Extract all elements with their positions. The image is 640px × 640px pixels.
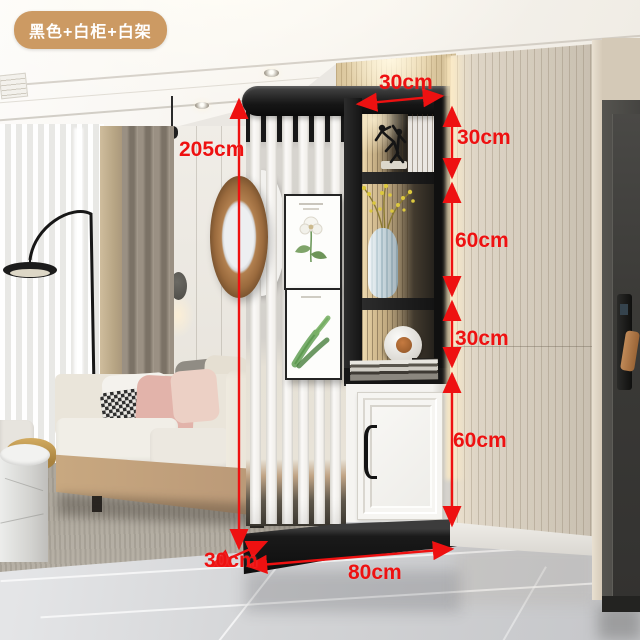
pillow-blush [170,368,220,424]
cabinet-handle [364,425,377,479]
dimension-label-base-depth: 30cm [204,550,258,571]
art-print-fern [285,288,342,380]
marble-vein [0,513,43,523]
ring-ornament-center [396,337,412,353]
dimension-label-total-width: 80cm [348,562,402,583]
ac-vent [0,73,28,100]
coffee-table-marble-top [0,444,50,466]
dimension-label-section-4: 60cm [453,430,507,451]
shelf-stile-left [344,98,362,386]
dimension-label-height: 205cm [179,139,244,160]
shelf-board [362,172,434,184]
divider-slat [266,112,277,524]
product-photo-room-divider: 205cm 30cm 30cm 60cm 30cm 60cm 30cm 80cm… [0,0,640,640]
pendant-cord [171,96,173,128]
divider-slat [250,112,261,524]
marble-vein [5,478,43,491]
wood-slat-wall [450,44,594,540]
recessed-spotlight [195,102,209,109]
smart-lock-screen [620,304,628,315]
stacked-books [350,359,438,381]
door-lintel-panel [602,38,640,108]
fern-illustration [287,290,336,374]
ribbed-vase [368,228,398,298]
dimension-label-top-depth: 30cm [379,72,433,93]
dimension-label-section-3: 30cm [455,328,509,349]
dimension-label-section-2: 60cm [455,230,509,251]
cabinet-door-panel [370,405,432,508]
recessed-spotlight [264,69,279,77]
variant-badge: 黑色+白柜+白架 [14,11,167,49]
shelf-opening-top [362,114,436,172]
art-print-flower [284,194,342,290]
led-edge-glow [446,56,466,480]
door-bottom-shadow [602,596,640,612]
shelf-board [362,298,434,310]
dimension-label-section-1: 30cm [457,127,511,148]
flower-illustration [286,196,336,284]
coffee-table-marble-side [0,454,48,562]
round-mirror [210,176,268,298]
